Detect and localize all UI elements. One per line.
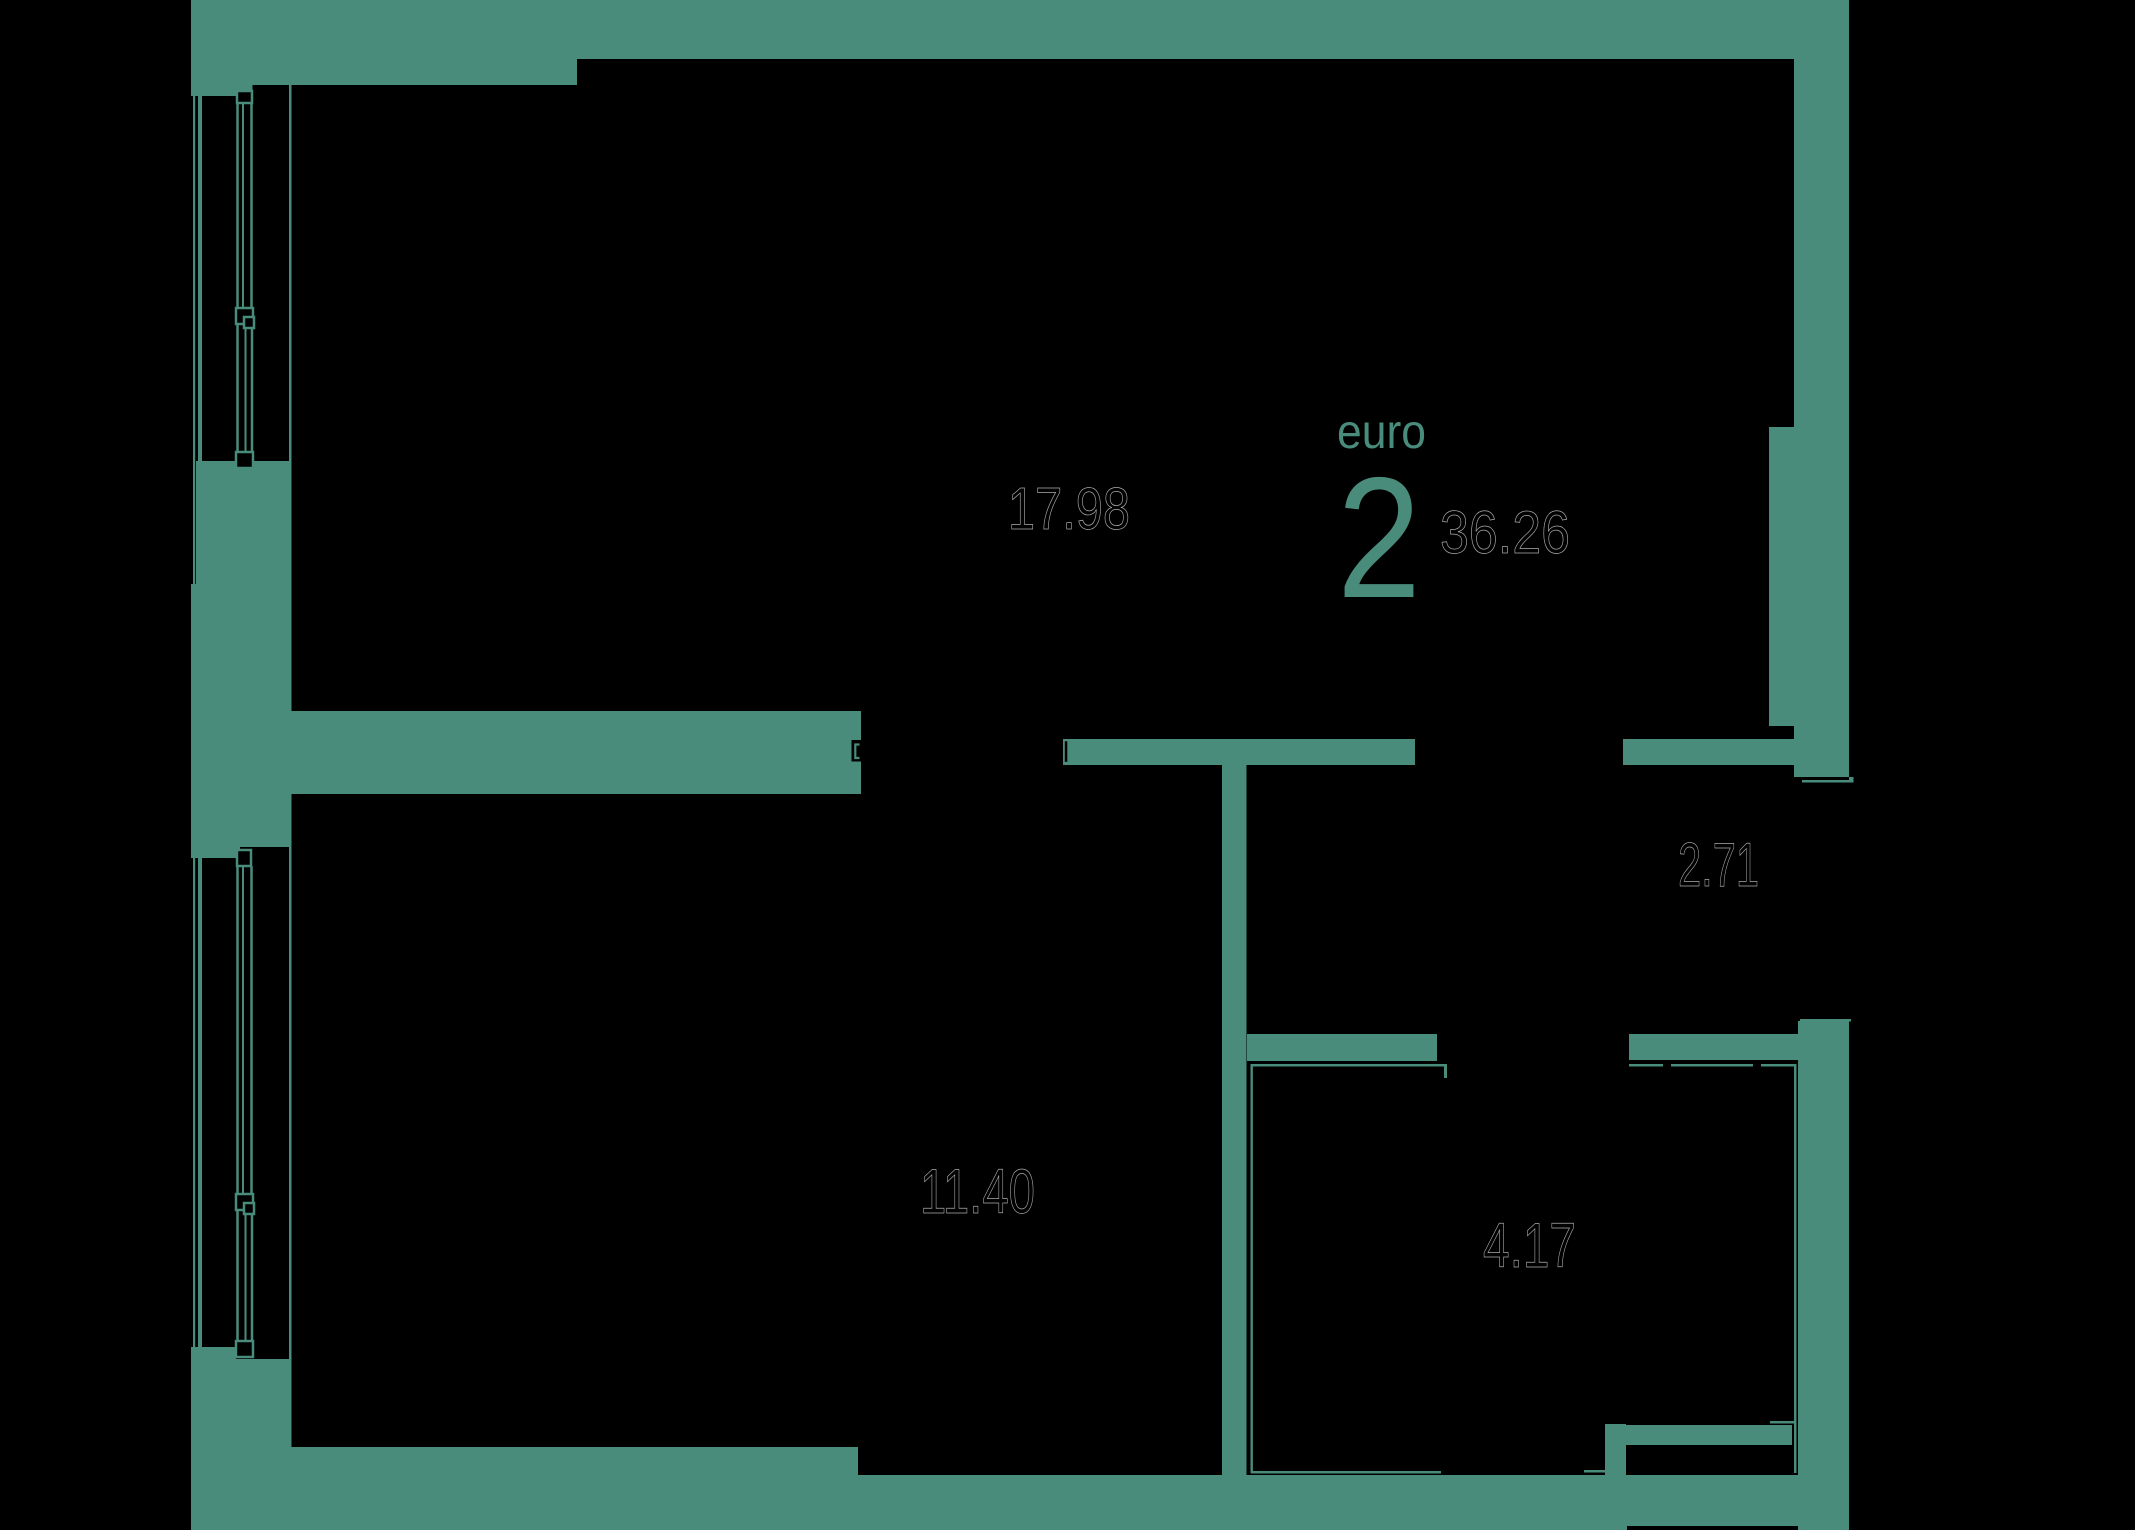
svg-text:4.17: 4.17 (1483, 1211, 1576, 1281)
svg-text:11.40: 11.40 (920, 1157, 1035, 1227)
svg-text:2.71: 2.71 (1678, 831, 1759, 900)
svg-text:36.26: 36.26 (1440, 499, 1570, 566)
svg-text:17.98: 17.98 (1008, 476, 1130, 542)
svg-text:2: 2 (1337, 442, 1421, 634)
